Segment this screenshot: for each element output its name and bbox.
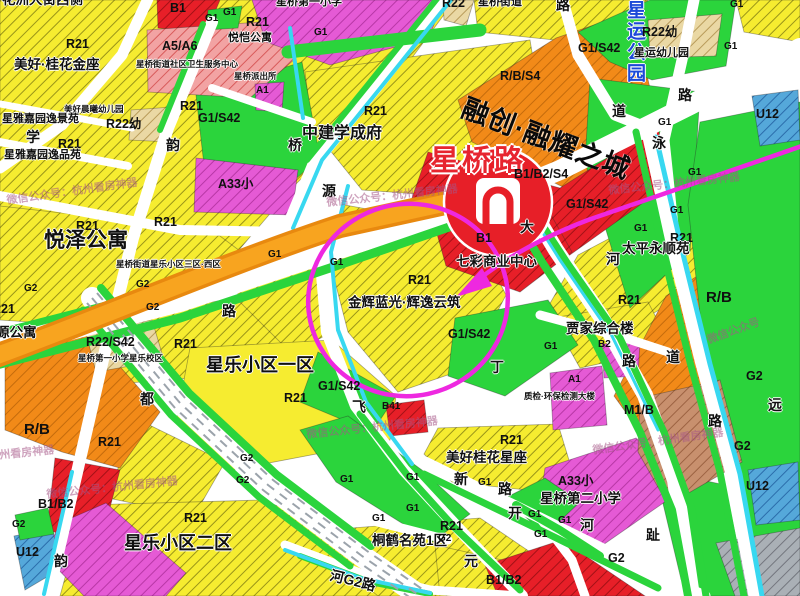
watermark: 微信公众号：杭州看房神器 — [592, 428, 724, 458]
watermark: 微信公众号：杭州看房神器 — [326, 184, 458, 209]
road-name-label: 桥 — [288, 138, 302, 153]
zone-code-label: G1 — [528, 510, 541, 521]
place-name-label: 星乐小区二区 — [124, 534, 232, 553]
place-name-label: 星桥派出所 — [234, 72, 277, 81]
zone-code-label: R21 — [440, 520, 463, 533]
zone-code-label: B2 — [598, 340, 611, 351]
zone-code-label: G2 — [746, 370, 763, 383]
watermark: 微信公众号：杭州看房神器 — [46, 476, 178, 501]
place-name-label: 金辉蓝光·辉逸云筑 — [348, 296, 461, 310]
zone-code-label: G1 — [223, 8, 236, 19]
zone-code-label: R21 — [0, 303, 15, 316]
place-name-label: 星雅嘉园逸品苑 — [4, 150, 81, 162]
zone-code-label: G1 — [340, 475, 353, 486]
zone-code-label: G2 — [608, 552, 625, 565]
place-name-label: 质检·环保检测大楼 — [524, 392, 595, 401]
road-name-label: 飞 — [352, 400, 366, 415]
zone-code-label: A1 — [568, 375, 581, 386]
road-name-label: 道 — [666, 350, 680, 365]
place-name-label: 源公寓 — [0, 326, 37, 340]
zone-code-label: R21 — [364, 105, 387, 118]
road-name-label: 路 — [498, 482, 512, 497]
zone-code-label: U12 — [16, 546, 39, 559]
zone-code-label: G1 — [268, 250, 281, 261]
road-name-label: 大 — [520, 220, 534, 235]
road-name-label: 新 — [454, 472, 468, 487]
zone-code-label: A33小 — [558, 475, 593, 488]
road-name-label: 路 — [678, 88, 692, 103]
place-name-label: 星雅嘉园逸景苑 — [2, 114, 79, 126]
place-name-label: 悦泽公寓 — [44, 230, 128, 252]
zone-code-label: R21 — [618, 294, 641, 307]
zone-code-label: R21 — [246, 16, 269, 29]
zone-code-label: R21 — [408, 274, 431, 287]
road-name-label: 远 — [768, 398, 782, 413]
zone-code-label: G2 — [438, 534, 451, 545]
road-name-label: 丁 — [490, 360, 504, 375]
place-name-label: 桐鹤名苑1区 — [372, 534, 447, 548]
zone-code-label: G1 — [634, 224, 647, 235]
zone-code-label: G1 — [534, 530, 547, 541]
zone-code-label: R/B — [706, 290, 732, 306]
place-name-label: 贾家综合楼 — [566, 322, 634, 336]
zone-code-label: G2 — [734, 440, 751, 453]
watermark: 微信公众号：杭州看房神器 — [6, 178, 138, 208]
zone-code-label: U12 — [746, 480, 769, 493]
zone-code-label: R22/S42 — [86, 336, 135, 349]
place-name-label: 星桥第二小学 — [540, 492, 621, 506]
zone-code-label: G2 — [12, 520, 25, 531]
zone-code-label: G1 — [730, 0, 743, 11]
zone-code-label: G1 — [372, 514, 385, 525]
zone-code-label: R21 — [154, 216, 177, 229]
zone-code-label: A5/A6 — [162, 40, 197, 53]
place-name-label: 星桥第一小学星乐校区 — [78, 354, 163, 363]
place-name-label: 星桥街道星乐小区三区·西区 — [116, 260, 221, 269]
place-name-label: 悦恺公寓 — [228, 33, 272, 45]
zone-code-label: G1 — [330, 258, 343, 269]
place-name-label: 星乐小区一区 — [206, 356, 314, 375]
road-name-label: 韵 — [166, 138, 180, 153]
watermark: 微信公众号：杭州看房神器 — [306, 416, 438, 441]
zone-code-label: R21 — [284, 392, 307, 405]
zone-code-label: R21 — [500, 434, 523, 447]
zone-code-label: G2 — [24, 284, 37, 295]
park-name-label: 星运公园 — [624, 0, 644, 84]
zone-code-label: A33小 — [218, 178, 253, 191]
zone-code-label: G1/S42 — [318, 380, 360, 393]
zone-code-label: G2 — [236, 476, 249, 487]
zone-code-label: G2 — [240, 454, 253, 465]
zone-code-label: G1 — [558, 516, 571, 527]
zone-code-label: G2 — [146, 303, 159, 314]
road-name-label: 元 — [464, 554, 478, 569]
zone-code-label: G1 — [406, 473, 419, 484]
zone-code-label: G1 — [658, 118, 671, 129]
zone-code-label: B41 — [382, 402, 400, 413]
watermark: 杭州看房神器 — [0, 445, 55, 463]
zoning-map: 花洲大街西侧R21美好·桂花金座B1G1G1R21悦恺公寓A5/A6星桥街道社区… — [0, 0, 800, 596]
road-name-label: 路 — [622, 354, 636, 369]
zone-code-label: G1/S42 — [566, 198, 608, 211]
road-name-label: 河 — [580, 518, 594, 533]
watermark: 微信公众号：杭州看房神器 — [608, 172, 740, 197]
zone-code-label: G1 — [406, 504, 419, 515]
zone-code-label: R/B/S4 — [500, 70, 540, 83]
zone-code-label: R/B — [24, 422, 50, 438]
road-name-label: 路 — [222, 304, 236, 319]
zone-code-label: M1/B — [624, 404, 654, 417]
zone-code-label: G1 — [314, 28, 327, 39]
road-name-label: 开 — [508, 506, 522, 521]
place-name-label: 星桥街道 — [478, 0, 522, 9]
watermark: 微信公众号 — [706, 317, 762, 347]
zone-code-label: R22幼 — [642, 26, 677, 39]
zone-code-label: G1 — [670, 206, 683, 217]
place-name-label: 七彩商业中心 — [456, 255, 537, 269]
label-layer: 花洲大街西侧R21美好·桂花金座B1G1G1R21悦恺公寓A5/A6星桥街道社区… — [0, 0, 800, 596]
road-name-label: 学 — [26, 130, 40, 145]
road-name-label: 趾 — [646, 528, 660, 543]
place-name-label: 太平永顺苑 — [622, 242, 690, 256]
zone-code-label: B1 — [170, 2, 186, 15]
zone-code-label: A1 — [256, 86, 269, 97]
road-name-label: 都 — [140, 392, 154, 407]
place-name-label: 星运幼儿园 — [634, 48, 689, 60]
place-name-label: 美好·桂花金座 — [14, 58, 100, 72]
place-name-label: 星桥街道社区卫生服务中心 — [136, 60, 238, 69]
road-name-label: 河G2路 — [328, 568, 377, 594]
zone-code-label: G1 — [544, 342, 557, 353]
zone-code-label: G1 — [478, 478, 491, 489]
zone-code-label: G1 — [724, 42, 737, 53]
road-name-label: 泳 — [652, 136, 666, 151]
zone-code-label: G1/S42 — [578, 42, 620, 55]
zone-code-label: R22 — [442, 0, 465, 10]
metro-station-label: 星桥路 — [430, 146, 526, 176]
zone-code-label: R22幼 — [106, 118, 141, 131]
zone-code-label: R21 — [98, 436, 121, 449]
zone-code-label: U12 — [756, 108, 779, 121]
zone-code-label: R21 — [66, 38, 89, 51]
road-name-label: 韵 — [54, 554, 68, 569]
road-name-label: 道 — [612, 104, 626, 119]
zone-code-label: G1/S42 — [198, 112, 240, 125]
place-name-label: 中建学成府 — [302, 126, 382, 143]
zone-code-label: R21 — [184, 512, 207, 525]
zone-code-label: B1/B2/S4 — [514, 168, 568, 181]
zone-code-label: G1 — [205, 14, 218, 25]
zone-code-label: R21 — [180, 100, 203, 113]
place-name-label: 美好桂花星座 — [446, 451, 527, 465]
place-name-label: 星桥第一小学 — [276, 0, 342, 9]
place-name-label: 花洲大街西侧 — [2, 0, 83, 7]
road-name-label: 路 — [556, 0, 570, 13]
zone-code-label: G2 — [136, 280, 149, 291]
zone-code-label: R21 — [174, 338, 197, 351]
zone-code-label: B1/B2 — [486, 574, 521, 587]
road-name-label: 河 — [606, 252, 620, 267]
zone-code-label: B1 — [476, 232, 492, 245]
zone-code-label: G1/S42 — [448, 328, 490, 341]
